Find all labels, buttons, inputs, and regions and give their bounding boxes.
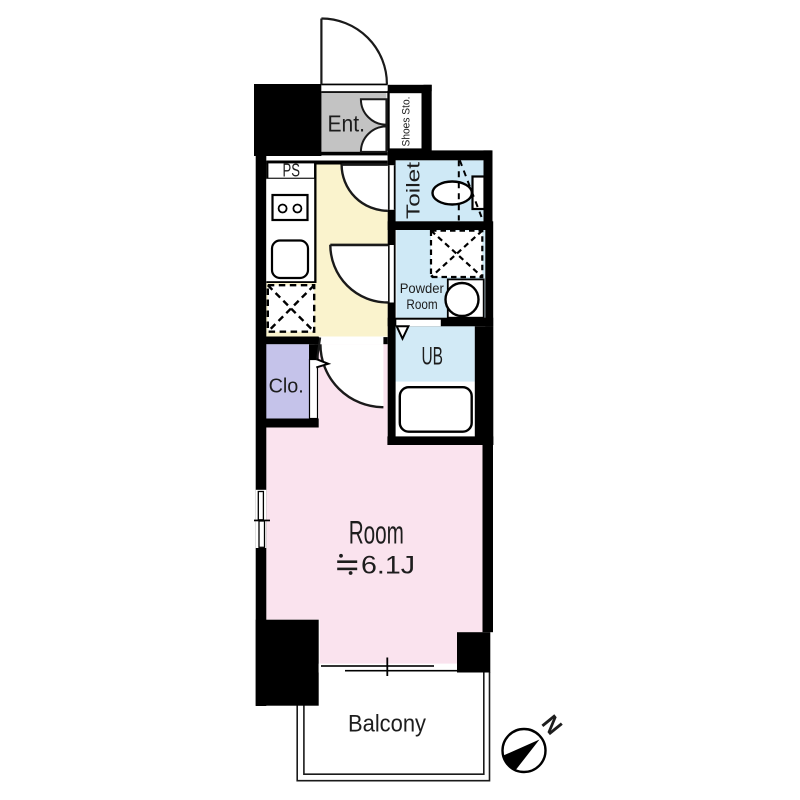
svg-text:6.1J: 6.1J [361, 551, 415, 579]
svg-text:Shoes Sto.: Shoes Sto. [401, 97, 413, 147]
svg-text:Room: Room [406, 297, 437, 312]
svg-text:Powder: Powder [400, 281, 445, 296]
svg-text:UB: UB [422, 343, 444, 371]
svg-text:Balcony: Balcony [348, 711, 427, 738]
svg-text:Room: Room [349, 515, 404, 551]
svg-text:Clo.: Clo. [269, 376, 304, 398]
svg-text:Ent.: Ent. [328, 111, 366, 137]
svg-text:PS: PS [283, 160, 301, 180]
svg-text:Toilet: Toilet [404, 162, 424, 219]
